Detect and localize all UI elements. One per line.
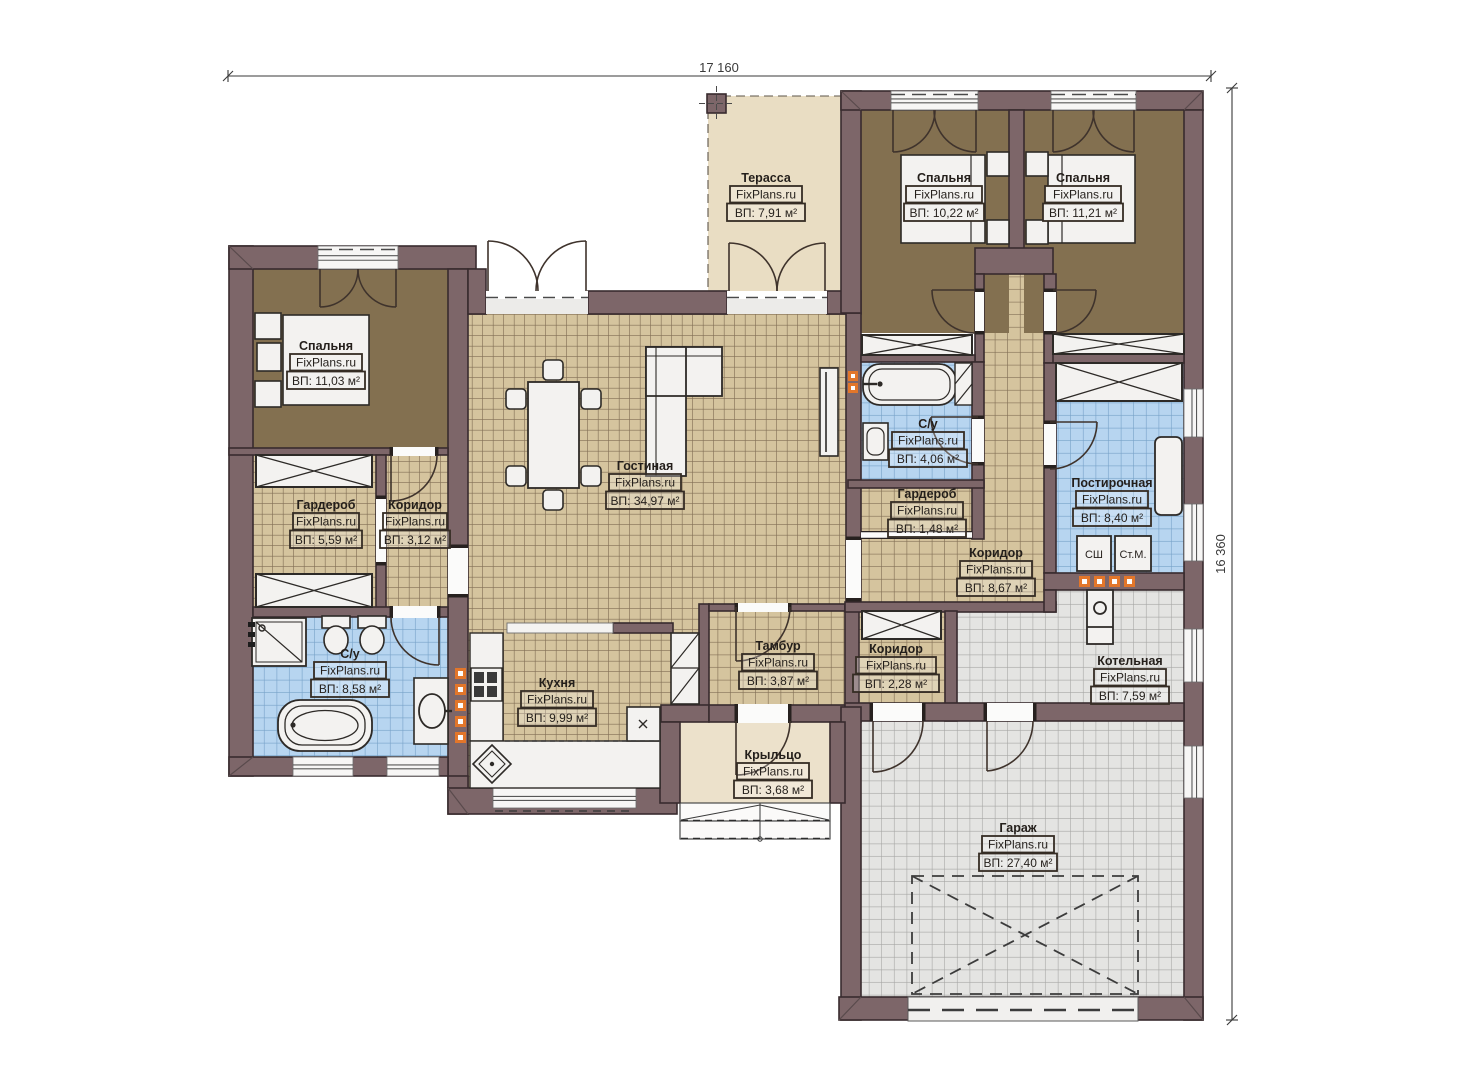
svg-text:С/у: С/у bbox=[340, 647, 360, 661]
svg-text:Терасса: Терасса bbox=[741, 171, 792, 185]
svg-text:Спальня: Спальня bbox=[917, 171, 971, 185]
svg-text:FixPlans.ru: FixPlans.ru bbox=[1082, 493, 1142, 507]
svg-text:FixPlans.ru: FixPlans.ru bbox=[320, 664, 380, 678]
svg-text:FixPlans.ru: FixPlans.ru bbox=[748, 656, 808, 670]
svg-text:Коридор: Коридор bbox=[969, 546, 1023, 560]
svg-text:СШ: СШ bbox=[1085, 549, 1103, 561]
svg-text:ВП: 9,99 м²: ВП: 9,99 м² bbox=[526, 711, 588, 725]
svg-text:FixPlans.ru: FixPlans.ru bbox=[898, 434, 958, 448]
svg-text:FixPlans.ru: FixPlans.ru bbox=[1100, 671, 1160, 685]
svg-text:ВП: 3,87 м²: ВП: 3,87 м² bbox=[747, 674, 809, 688]
svg-text:ВП: 4,06 м²: ВП: 4,06 м² bbox=[897, 452, 959, 466]
svg-text:Гараж: Гараж bbox=[999, 821, 1036, 835]
svg-text:FixPlans.ru: FixPlans.ru bbox=[736, 188, 796, 202]
svg-text:Кухня: Кухня bbox=[539, 676, 576, 690]
svg-text:ВП: 5,59 м²: ВП: 5,59 м² bbox=[295, 533, 357, 547]
svg-text:FixPlans.ru: FixPlans.ru bbox=[527, 693, 587, 707]
svg-text:FixPlans.ru: FixPlans.ru bbox=[866, 659, 926, 673]
svg-text:ВП: 2,28 м²: ВП: 2,28 м² bbox=[865, 677, 927, 691]
svg-text:ВП: 7,91 м²: ВП: 7,91 м² bbox=[735, 206, 797, 220]
svg-text:ВП: 3,12 м²: ВП: 3,12 м² bbox=[384, 533, 446, 547]
svg-text:Спальня: Спальня bbox=[299, 339, 353, 353]
svg-text:ВП: 8,58 м²: ВП: 8,58 м² bbox=[319, 682, 381, 696]
svg-text:Котельная: Котельная bbox=[1097, 654, 1162, 668]
svg-text:Гардероб: Гардероб bbox=[296, 498, 355, 512]
svg-text:ВП: 10,22 м²: ВП: 10,22 м² bbox=[910, 206, 979, 220]
svg-text:FixPlans.ru: FixPlans.ru bbox=[743, 765, 803, 779]
svg-text:Тамбур: Тамбур bbox=[755, 639, 801, 653]
svg-text:ВП: 11,03 м²: ВП: 11,03 м² bbox=[292, 374, 360, 388]
svg-text:17 160: 17 160 bbox=[699, 60, 739, 75]
svg-text:FixPlans.ru: FixPlans.ru bbox=[615, 476, 675, 490]
svg-text:ВП: 7,59 м²: ВП: 7,59 м² bbox=[1099, 689, 1161, 703]
svg-text:ВП: 34,97 м²: ВП: 34,97 м² bbox=[611, 494, 680, 508]
svg-text:FixPlans.ru: FixPlans.ru bbox=[966, 563, 1026, 577]
svg-text:Коридор: Коридор bbox=[388, 498, 442, 512]
svg-text:Крыльцо: Крыльцо bbox=[745, 748, 802, 762]
svg-text:Постирочная: Постирочная bbox=[1071, 476, 1152, 490]
svg-text:Коридор: Коридор bbox=[869, 642, 923, 656]
svg-text:ВП: 27,40 м²: ВП: 27,40 м² bbox=[984, 856, 1053, 870]
svg-text:FixPlans.ru: FixPlans.ru bbox=[914, 188, 974, 202]
svg-text:ВП: 11,21 м²: ВП: 11,21 м² bbox=[1049, 206, 1117, 220]
svg-text:ВП: 8,40 м²: ВП: 8,40 м² bbox=[1081, 511, 1143, 525]
svg-text:FixPlans.ru: FixPlans.ru bbox=[988, 838, 1048, 852]
svg-text:FixPlans.ru: FixPlans.ru bbox=[1053, 188, 1113, 202]
svg-text:FixPlans.ru: FixPlans.ru bbox=[296, 515, 356, 529]
svg-text:16 360: 16 360 bbox=[1213, 534, 1228, 574]
svg-text:Гостиная: Гостиная bbox=[617, 459, 674, 473]
svg-text:FixPlans.ru: FixPlans.ru bbox=[296, 356, 356, 370]
svg-text:Спальня: Спальня bbox=[1056, 171, 1110, 185]
svg-text:FixPlans.ru: FixPlans.ru bbox=[897, 504, 957, 518]
svg-text:FixPlans.ru: FixPlans.ru bbox=[385, 515, 445, 529]
svg-text:ВП: 8,67 м²: ВП: 8,67 м² bbox=[965, 581, 1027, 595]
svg-text:ВП: 3,68 м²: ВП: 3,68 м² bbox=[742, 783, 804, 797]
svg-text:С/у: С/у bbox=[918, 417, 938, 431]
svg-text:Гардероб: Гардероб bbox=[897, 487, 956, 501]
svg-text:Ст.М.: Ст.М. bbox=[1119, 549, 1146, 561]
svg-text:ВП: 1,48 м²: ВП: 1,48 м² bbox=[896, 522, 958, 536]
